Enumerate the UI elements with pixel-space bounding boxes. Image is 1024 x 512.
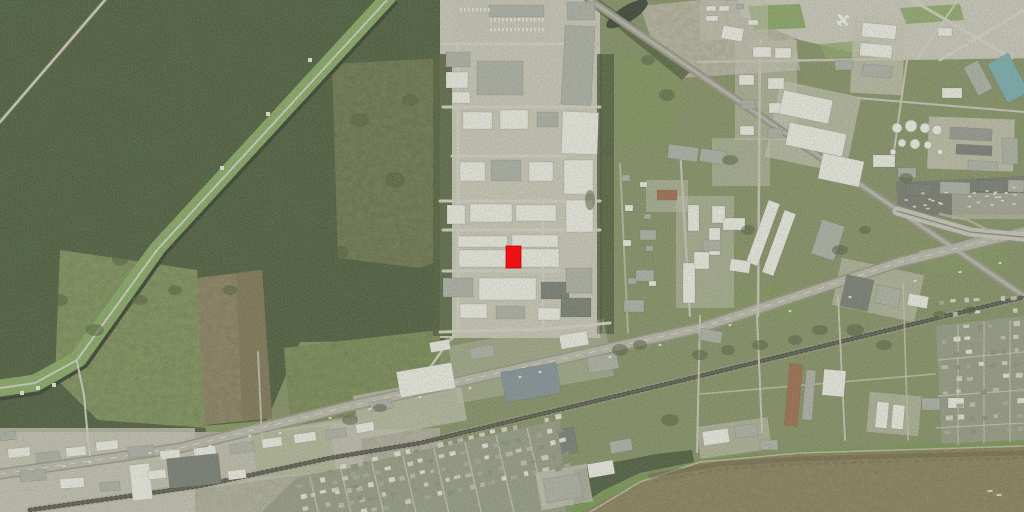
selected-building-marker[interactable] (506, 246, 521, 268)
satellite-map[interactable] (0, 0, 1024, 512)
marker-layer (506, 246, 521, 268)
satellite-map-view[interactable] (0, 0, 1024, 512)
